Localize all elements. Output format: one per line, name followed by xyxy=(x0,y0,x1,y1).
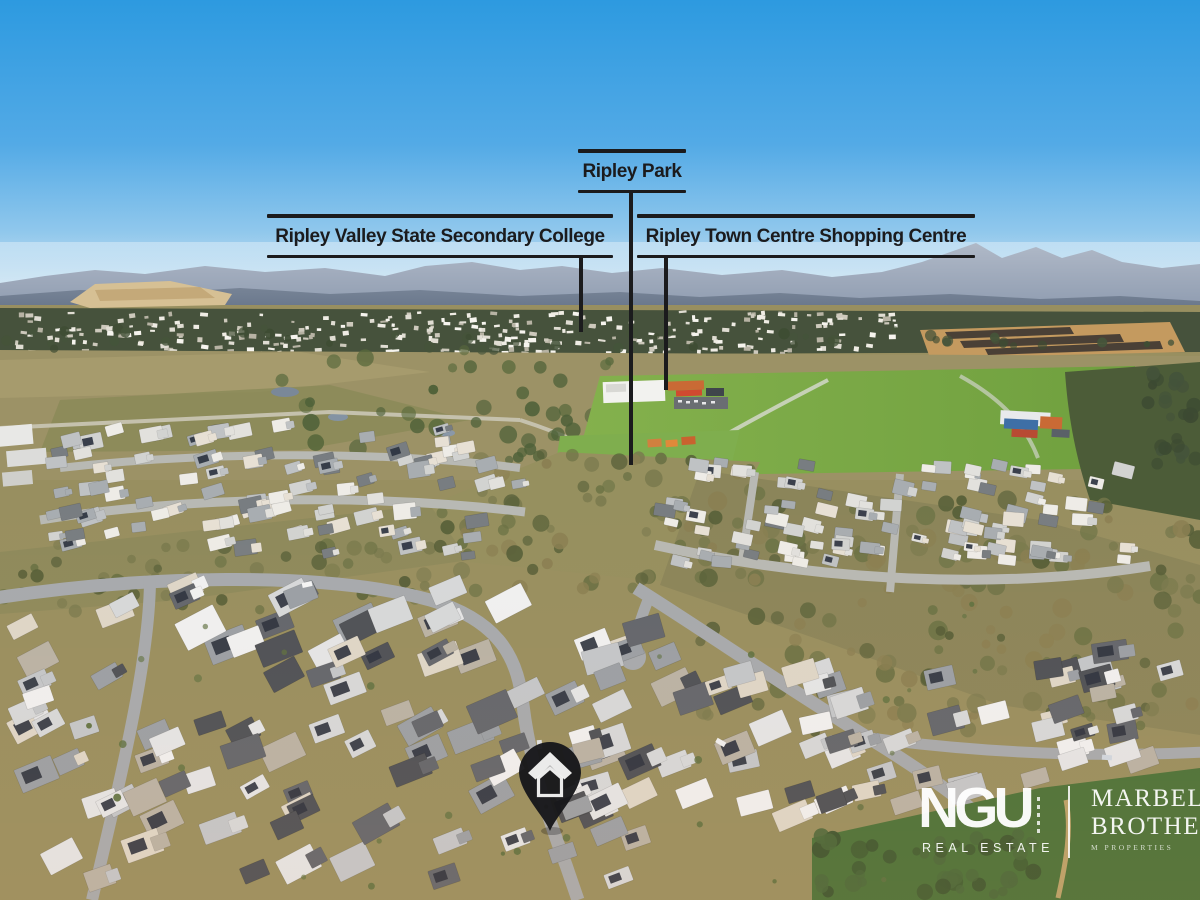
property-pin xyxy=(513,738,587,836)
annotation-pointer-park xyxy=(629,191,633,465)
marbelle-logo-line2: BROTHERS xyxy=(1091,813,1200,841)
ngu-logo-wordmark: NGU xyxy=(918,779,1030,837)
aerial-photo xyxy=(0,0,1200,900)
logo-divider xyxy=(1068,786,1070,858)
ngu-vertical-text-mark xyxy=(1037,797,1040,833)
evening-light-overlay xyxy=(0,0,1200,900)
annotation-pointer-college xyxy=(579,256,583,332)
annotation-label: Ripley Park xyxy=(578,153,686,190)
marbelle-brothers-logo: MARBELLE BROTHERS M PROPERTIES xyxy=(1091,785,1200,852)
marbelle-logo-line1: MARBELLE xyxy=(1091,785,1200,813)
annotation-park: Ripley Park xyxy=(578,149,686,193)
annotation-rule xyxy=(637,255,975,259)
annotation-pointer-shopping-centre xyxy=(664,256,668,390)
annotation-shopping-centre: Ripley Town Centre Shopping Centre xyxy=(637,214,975,258)
marbelle-logo-line3: M PROPERTIES xyxy=(1091,843,1200,852)
ngu-logo-tagline: REAL ESTATE xyxy=(922,841,1054,855)
annotation-label: Ripley Valley State Secondary College xyxy=(267,218,613,255)
real-estate-aerial-banner: Ripley Park Ripley Valley State Secondar… xyxy=(0,0,1200,900)
annotation-rule xyxy=(267,255,613,259)
annotation-college: Ripley Valley State Secondary College xyxy=(267,214,613,258)
annotation-label: Ripley Town Centre Shopping Centre xyxy=(637,218,975,255)
pin-shadow xyxy=(541,827,563,835)
